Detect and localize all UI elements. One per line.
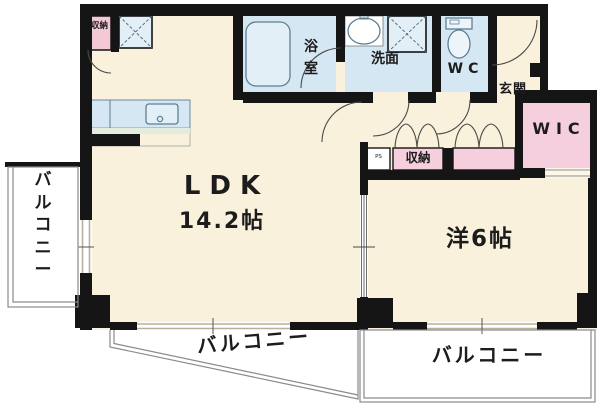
- washer-space-icon: [388, 16, 426, 52]
- wic-opening: [545, 168, 590, 178]
- hall-closet-label: 収納: [394, 151, 442, 165]
- balcony-left-label: バルコニー: [32, 169, 54, 282]
- bath-label: 浴室: [302, 36, 320, 81]
- western-room-label: 洋6帖: [405, 226, 555, 252]
- toilet-icon: [446, 18, 472, 58]
- refrigerator-space-icon: [119, 16, 152, 48]
- bathtub-icon: [246, 22, 290, 86]
- ldk-size-label: 14.2帖: [152, 209, 292, 234]
- balcony-bottom-right-label: バルコニー: [398, 344, 580, 367]
- window-left: [78, 220, 94, 273]
- counter-strip: [87, 128, 190, 134]
- entrance-label: 玄関: [489, 83, 537, 98]
- floor-plan: LDK 14.2帖 洋6帖 浴室 洗面 WC 玄関 WIC 収納 収納 PS バ…: [0, 0, 600, 409]
- entrance-cabinet-box: [453, 148, 515, 170]
- ldk-label: LDK: [152, 172, 292, 202]
- wic-label: WIC: [520, 120, 592, 138]
- kitchen-closet-label: 収納: [86, 22, 113, 32]
- washroom-label: 洗面: [352, 51, 418, 67]
- wc-label: WC: [438, 61, 488, 77]
- pipe-space-label: PS: [368, 154, 389, 160]
